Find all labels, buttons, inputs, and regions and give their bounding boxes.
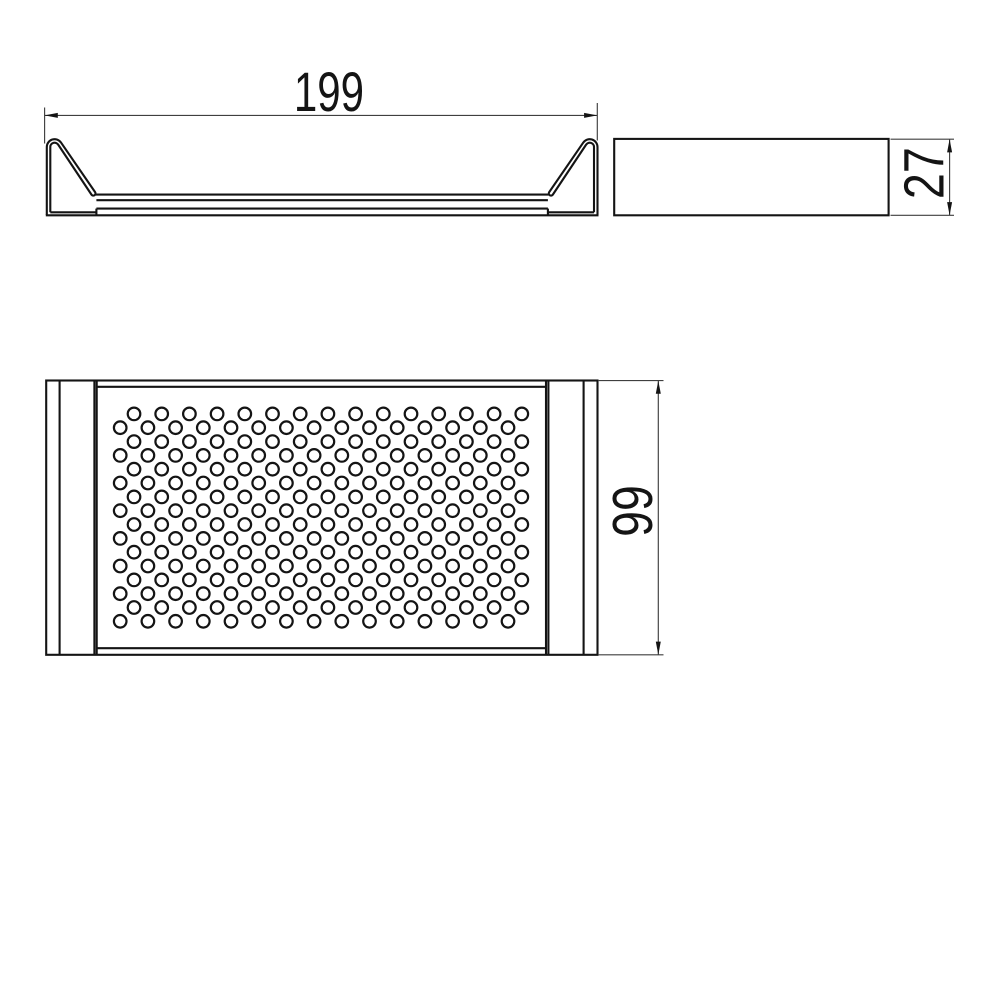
svg-text:27: 27: [893, 147, 956, 199]
svg-text:99: 99: [601, 485, 664, 537]
svg-text:199: 199: [294, 61, 364, 123]
